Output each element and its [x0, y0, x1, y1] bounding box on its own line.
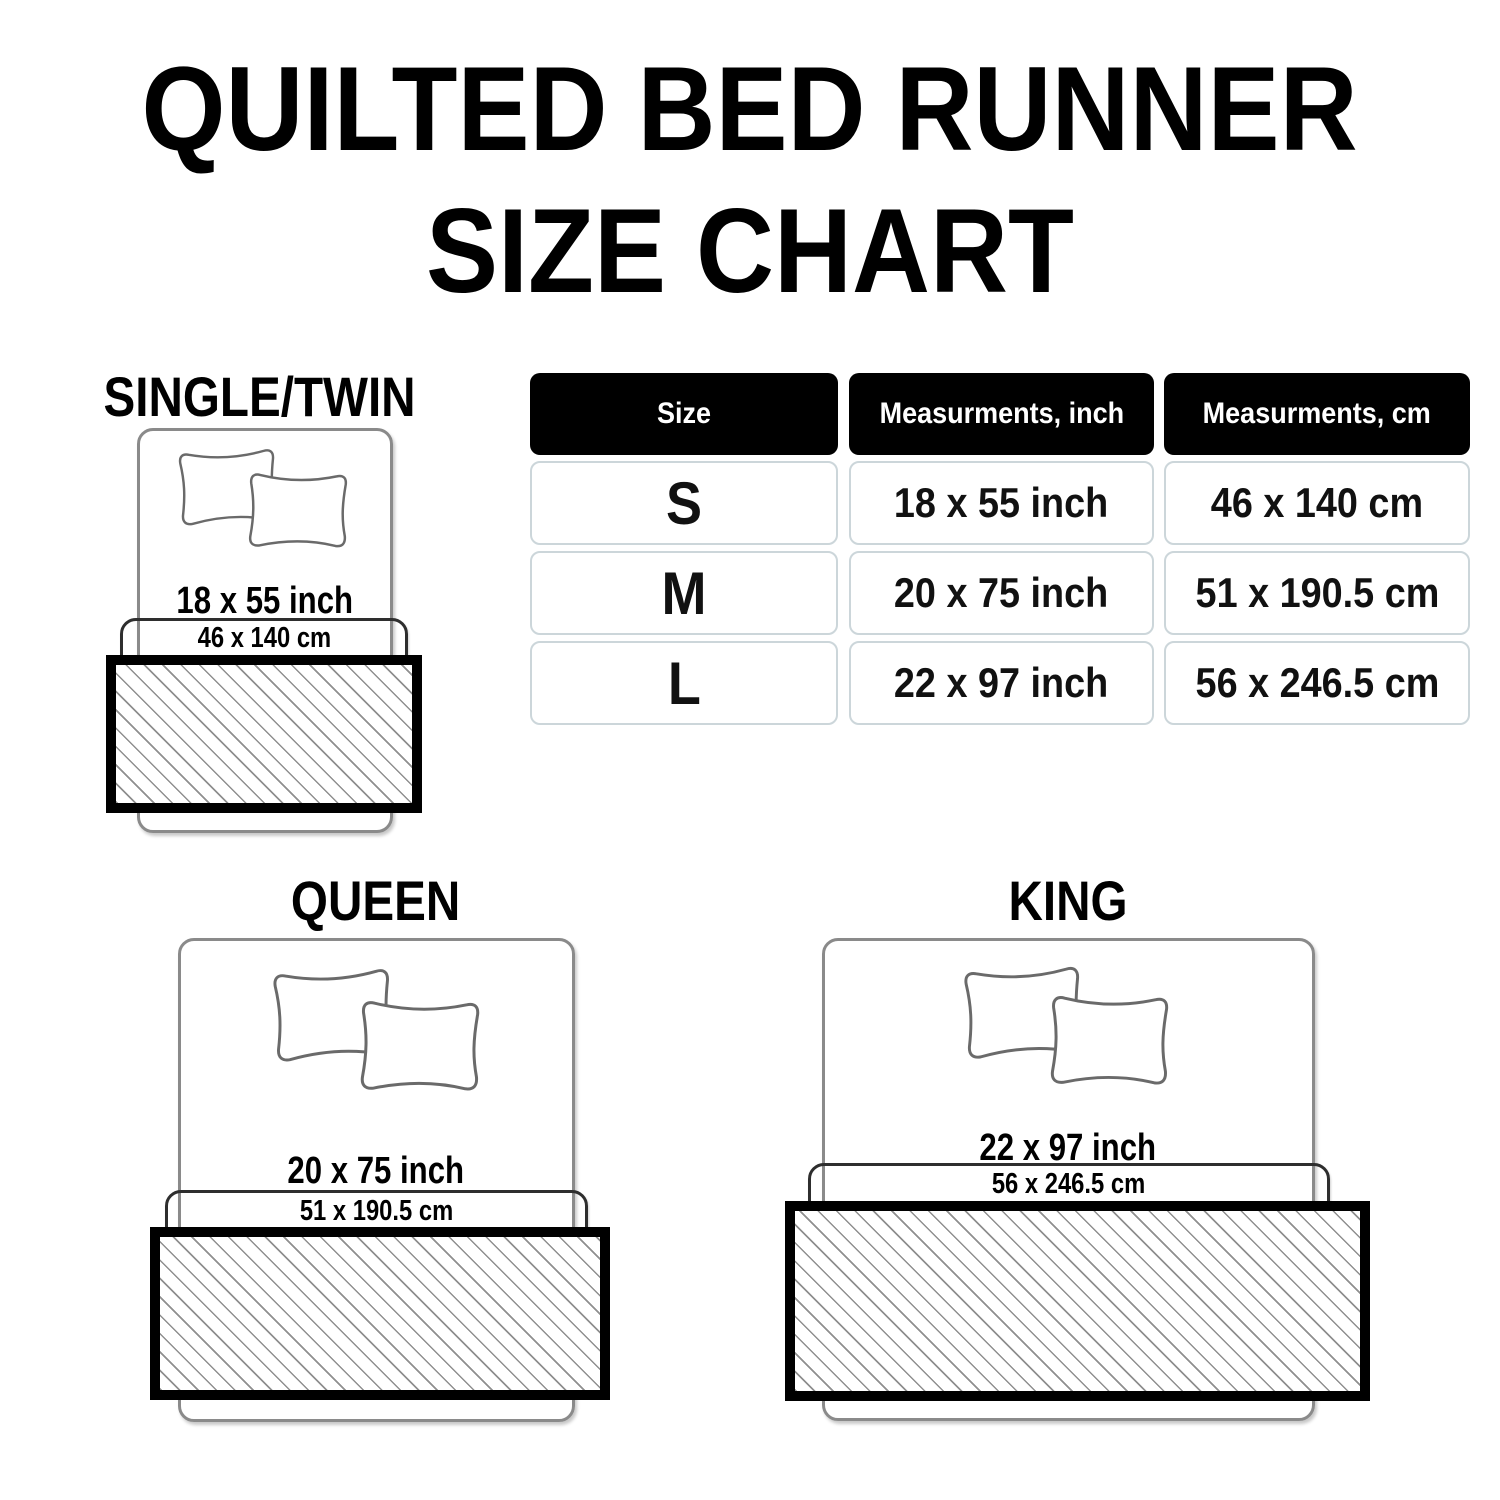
- table-cell-l-size: L: [530, 641, 838, 725]
- cm-dimension-label: 51 x 190.5 cm: [165, 1196, 588, 1227]
- bed-size-label-queen: QUEEN: [176, 872, 576, 930]
- table-header-inch: Measurments, inch: [849, 373, 1154, 455]
- bed-size-label-single-twin: SINGLE/TWIN: [55, 368, 465, 426]
- cm-dimension-label: 46 x 140 cm: [120, 623, 408, 654]
- inch-dimension-label: 20 x 75 inch: [226, 1151, 526, 1191]
- table-cell-m-inch: 20 x 75 inch: [849, 551, 1154, 635]
- inch-dimension-label: 18 x 55 inch: [115, 581, 415, 621]
- table-cell-s-cm: 46 x 140 cm: [1164, 461, 1470, 545]
- title-line-2: SIZE CHART: [0, 180, 1500, 322]
- table-cell-l-inch: 22 x 97 inch: [849, 641, 1154, 725]
- table-cell-l-cm: 56 x 246.5 cm: [1164, 641, 1470, 725]
- pillow-icon: [1039, 990, 1180, 1091]
- bed-runner-swatch: [106, 655, 422, 813]
- inch-dimension-label: 22 x 97 inch: [918, 1128, 1218, 1168]
- pillow-icon: [239, 466, 357, 555]
- pillow-icon: [349, 995, 491, 1097]
- table-cell-m-size: M: [530, 551, 838, 635]
- page-title: QUILTED BED RUNNER SIZE CHART: [0, 38, 1500, 322]
- table-header-cm: Measurments, cm: [1164, 373, 1470, 455]
- table-cell-m-cm: 51 x 190.5 cm: [1164, 551, 1470, 635]
- title-line-1: QUILTED BED RUNNER: [0, 38, 1500, 180]
- table-cell-s-size: S: [530, 461, 838, 545]
- bed-runner-swatch: [150, 1227, 610, 1400]
- bed-runner-swatch: [785, 1201, 1370, 1401]
- table-header-size: Size: [530, 373, 838, 455]
- size-chart-infographic: QUILTED BED RUNNER SIZE CHART Size Measu…: [0, 0, 1500, 1500]
- cm-dimension-label: 56 x 246.5 cm: [808, 1169, 1330, 1200]
- bed-size-label-king: KING: [868, 872, 1268, 930]
- table-cell-s-inch: 18 x 55 inch: [849, 461, 1154, 545]
